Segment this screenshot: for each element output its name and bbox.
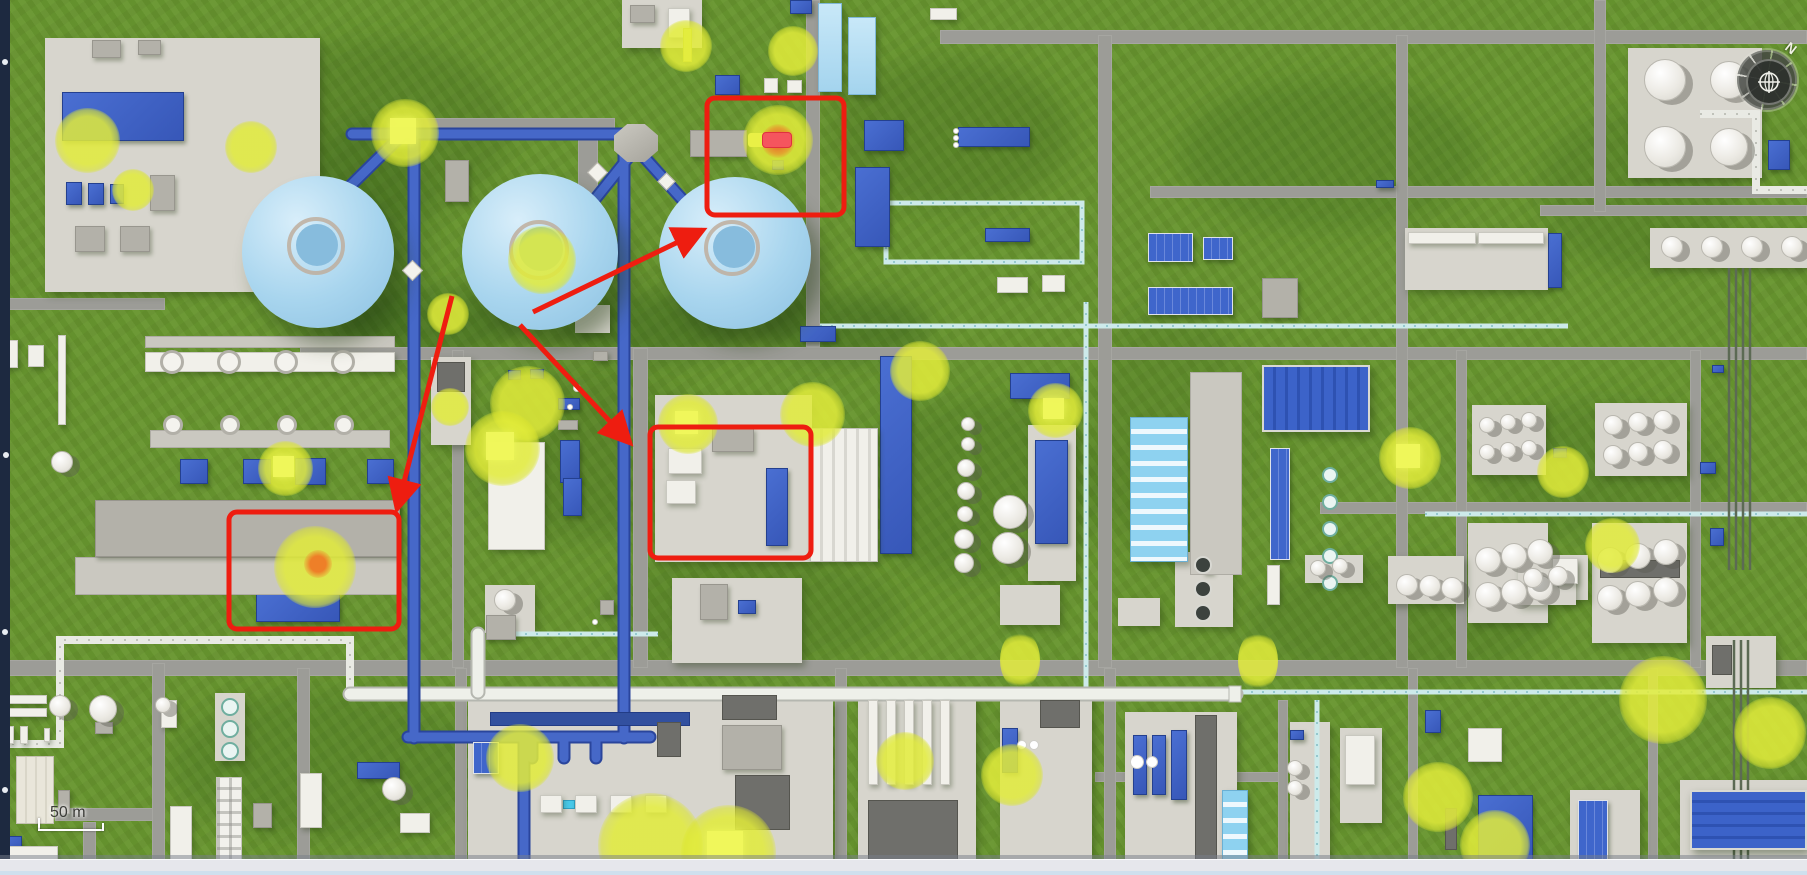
storage-tank — [1653, 440, 1673, 460]
highlight-marker[interactable] — [1585, 518, 1640, 573]
building-blue — [1700, 462, 1716, 474]
small-white-dot — [592, 619, 598, 625]
storage-tank — [155, 697, 171, 713]
building-cream — [16, 756, 54, 824]
building-blue — [66, 182, 82, 205]
building-gray — [593, 351, 608, 361]
building-blue — [738, 600, 756, 614]
building-blue — [958, 127, 1030, 147]
fan-unit — [1322, 521, 1338, 537]
storage-tank — [1479, 444, 1495, 460]
highlight-marker[interactable] — [486, 724, 554, 792]
compass-widget[interactable] — [1737, 50, 1797, 110]
storage-tank — [1501, 579, 1527, 605]
fan-unit — [331, 350, 355, 374]
marker-core — [390, 118, 416, 144]
small-white-dot — [953, 128, 959, 134]
fan-unit — [1194, 556, 1212, 574]
storage-tank — [992, 532, 1024, 564]
building-gray — [1262, 278, 1298, 318]
fan-unit — [221, 742, 239, 760]
edge-particle-dot — [2, 629, 8, 635]
storage-tank — [957, 459, 975, 477]
small-white-dot — [1029, 740, 1039, 750]
building-white — [1042, 275, 1065, 292]
fan-unit — [277, 415, 297, 435]
building-hangar — [1262, 365, 1370, 432]
highlight-marker[interactable] — [1537, 446, 1590, 499]
storage-tank — [1653, 410, 1673, 430]
highlight-marker[interactable] — [876, 732, 934, 790]
building-gray — [92, 40, 121, 58]
highlight-marker[interactable] — [1734, 697, 1807, 770]
highlight-marker[interactable] — [1619, 656, 1707, 744]
storage-tank — [1781, 236, 1803, 258]
storage-tank — [1287, 760, 1303, 776]
building-solar — [1148, 233, 1193, 262]
building-white — [44, 728, 50, 742]
small-white-dot — [953, 142, 959, 148]
building-blue — [1376, 180, 1394, 188]
scale-bar-tick-right — [102, 823, 104, 831]
building-white — [666, 480, 696, 504]
building-gray — [95, 722, 113, 734]
storage-tank — [961, 437, 975, 451]
fan-unit — [274, 350, 298, 374]
building-dark — [657, 722, 681, 757]
storage-tank — [1628, 442, 1648, 462]
storage-tank — [382, 777, 406, 801]
fan-unit — [221, 720, 239, 738]
fan-unit — [334, 415, 354, 435]
building-blue — [1425, 710, 1441, 733]
rack-rungs — [886, 203, 1082, 262]
building-gray — [253, 803, 272, 828]
teal-pipe-rack — [886, 203, 1082, 262]
building-dark — [1040, 700, 1080, 728]
building-solar — [1270, 448, 1290, 560]
building-dark — [1195, 715, 1217, 870]
building-whitestripe — [810, 428, 878, 562]
storage-tank — [1521, 412, 1537, 428]
building-solar — [1578, 800, 1608, 860]
building-white — [58, 335, 66, 425]
sphere-ring — [704, 220, 760, 276]
storage-tank — [1625, 581, 1651, 607]
storage-tank — [1644, 126, 1686, 168]
building-blue — [715, 75, 740, 95]
building-white — [575, 795, 597, 813]
fan-unit — [1322, 494, 1338, 510]
small-white-dot — [573, 384, 581, 392]
building-graylight — [145, 336, 395, 348]
fan-unit — [163, 415, 183, 435]
highlight-marker[interactable] — [225, 121, 278, 174]
storage-tank — [1523, 568, 1543, 588]
storage-tank — [494, 589, 516, 611]
storage-tank — [1701, 236, 1723, 258]
building-gray — [558, 420, 578, 430]
storage-tank — [89, 695, 117, 723]
building-gray — [486, 615, 516, 640]
building-white — [1267, 565, 1280, 605]
building-white — [764, 78, 778, 93]
building-white — [20, 726, 28, 744]
fan-unit — [1322, 467, 1338, 483]
building-gray — [630, 5, 655, 23]
building-hangarh — [1690, 790, 1807, 850]
small-white-dot — [953, 135, 959, 141]
globe-crosshair-icon — [1746, 59, 1792, 105]
building-blue — [1768, 140, 1790, 170]
storage-tank — [1653, 539, 1679, 565]
storage-tank — [1500, 414, 1516, 430]
bottom-edge-line — [0, 871, 1807, 875]
storage-tank — [1310, 560, 1326, 576]
storage-tank — [1603, 445, 1623, 465]
highlight-marker[interactable] — [660, 20, 713, 73]
building-graylight — [1190, 372, 1242, 575]
facility-map-canvas[interactable]: N 50 m — [0, 0, 1807, 875]
highlight-marker[interactable] — [1403, 762, 1473, 832]
building-white — [300, 773, 322, 828]
building-white — [787, 80, 802, 93]
building-blue — [985, 228, 1030, 242]
scale-bar-line — [38, 829, 104, 831]
building-blue — [1035, 440, 1068, 544]
building-cyanbit — [563, 800, 575, 809]
building-solar — [1203, 237, 1233, 260]
storage-tank — [1287, 780, 1303, 796]
storage-tank — [1332, 558, 1348, 574]
building-white — [868, 700, 878, 785]
highlight-marker[interactable] — [508, 226, 576, 294]
building-white — [28, 345, 44, 367]
highlight-marker[interactable] — [1000, 631, 1040, 689]
pipe-end-cap — [1229, 686, 1241, 702]
storage-tank — [1644, 59, 1686, 101]
storage-tank — [1661, 236, 1683, 258]
storage-tank — [1741, 236, 1763, 258]
building-gray — [600, 600, 614, 615]
heat-core — [304, 550, 332, 578]
building-blue — [180, 459, 208, 484]
building-blue — [1712, 365, 1724, 373]
edge-particle-dot — [2, 59, 8, 65]
highlight-marker[interactable] — [780, 382, 845, 447]
building-white — [930, 8, 957, 20]
scale-bar-label: 50 m — [50, 804, 86, 822]
building-white — [5, 708, 47, 717]
building-blue — [560, 440, 580, 483]
fan-unit — [1194, 580, 1212, 598]
building-cyan — [1130, 417, 1188, 562]
fan-unit — [1322, 575, 1338, 591]
storage-tank — [957, 482, 975, 500]
building-white — [400, 813, 430, 833]
storage-tank — [1597, 585, 1623, 611]
storage-tank — [1653, 577, 1679, 603]
small-white-dot — [1130, 755, 1144, 769]
storage-tank — [1527, 539, 1553, 565]
building-gray — [722, 725, 782, 770]
storage-tank — [51, 451, 73, 473]
building-blue — [88, 183, 104, 205]
highlight-marker[interactable] — [55, 108, 120, 173]
rack-rungs — [0, 640, 350, 744]
sphere-ring — [287, 217, 345, 275]
small-white-dot — [567, 404, 573, 410]
edge-particle-dot — [3, 452, 9, 458]
building-dark — [722, 695, 777, 720]
left-edge-panel — [0, 0, 10, 875]
building-blue — [1171, 730, 1187, 800]
small-white-dot — [1146, 756, 1158, 768]
highlight-marker[interactable] — [431, 388, 469, 426]
storage-tank — [1475, 547, 1501, 573]
highlight-marker[interactable] — [1238, 631, 1278, 691]
storage-tank — [1396, 574, 1418, 596]
storage-tank — [1500, 442, 1516, 458]
storage-tank — [954, 529, 974, 549]
highlight-marker[interactable] — [890, 341, 950, 401]
storage-tank — [1603, 415, 1623, 435]
storage-tank — [1475, 582, 1501, 608]
fan-unit — [217, 350, 241, 374]
storage-tank — [1548, 566, 1568, 586]
building-cyan — [1222, 790, 1248, 862]
building-blue — [766, 468, 788, 546]
edge-particle-dot — [2, 787, 8, 793]
marker-core — [1396, 444, 1420, 468]
building-gray — [712, 428, 754, 452]
storage-tank — [1419, 575, 1441, 597]
storage-tank — [993, 495, 1027, 529]
marker-core — [1043, 398, 1064, 419]
marker-core — [486, 432, 515, 461]
building-blue — [367, 459, 394, 484]
building-blue — [855, 167, 890, 247]
highlight-marker[interactable] — [768, 26, 818, 76]
building-white — [1408, 232, 1476, 244]
marker-core — [273, 456, 294, 477]
fan-unit — [220, 415, 240, 435]
building-blue — [1710, 528, 1724, 546]
building-blue — [790, 0, 812, 14]
building-dark — [1712, 645, 1732, 675]
storage-tank — [1441, 577, 1463, 599]
storage-tank — [49, 695, 71, 717]
marker-core — [675, 411, 698, 434]
building-gray — [95, 500, 400, 557]
building-white — [1468, 728, 1502, 762]
building-blue — [563, 478, 582, 516]
building-dark — [868, 800, 958, 860]
building-white — [5, 695, 47, 704]
fan-unit — [160, 350, 184, 374]
building-gray — [138, 40, 161, 55]
building-white — [997, 277, 1028, 293]
storage-tank — [1521, 440, 1537, 456]
storage-tank — [1710, 128, 1748, 166]
fan-unit — [1194, 604, 1212, 622]
building-solar — [1148, 287, 1233, 315]
building-gray — [700, 584, 728, 620]
building-white — [1478, 232, 1544, 244]
fan-unit — [221, 698, 239, 716]
storage-tank — [957, 506, 973, 522]
storage-tank — [1501, 543, 1527, 569]
white-pipe-rack — [0, 640, 350, 744]
highlight-marker[interactable] — [981, 744, 1044, 807]
storage-tank — [1479, 417, 1495, 433]
building-gray — [690, 130, 747, 157]
building-blue — [1548, 233, 1562, 288]
building-white — [940, 700, 950, 785]
building-gray — [75, 226, 105, 252]
storage-tank — [1628, 412, 1648, 432]
building-gray — [120, 226, 150, 252]
storage-tank — [961, 417, 975, 431]
building-white — [540, 795, 562, 813]
building-gray — [445, 160, 469, 202]
alarm-red-core — [762, 132, 792, 148]
building-blue — [1290, 730, 1304, 740]
building-blue — [864, 120, 904, 151]
storage-tank — [954, 553, 974, 573]
building-pale — [848, 17, 876, 95]
building-white — [1345, 735, 1375, 785]
building-pale — [818, 3, 842, 92]
building-blue — [800, 326, 836, 342]
